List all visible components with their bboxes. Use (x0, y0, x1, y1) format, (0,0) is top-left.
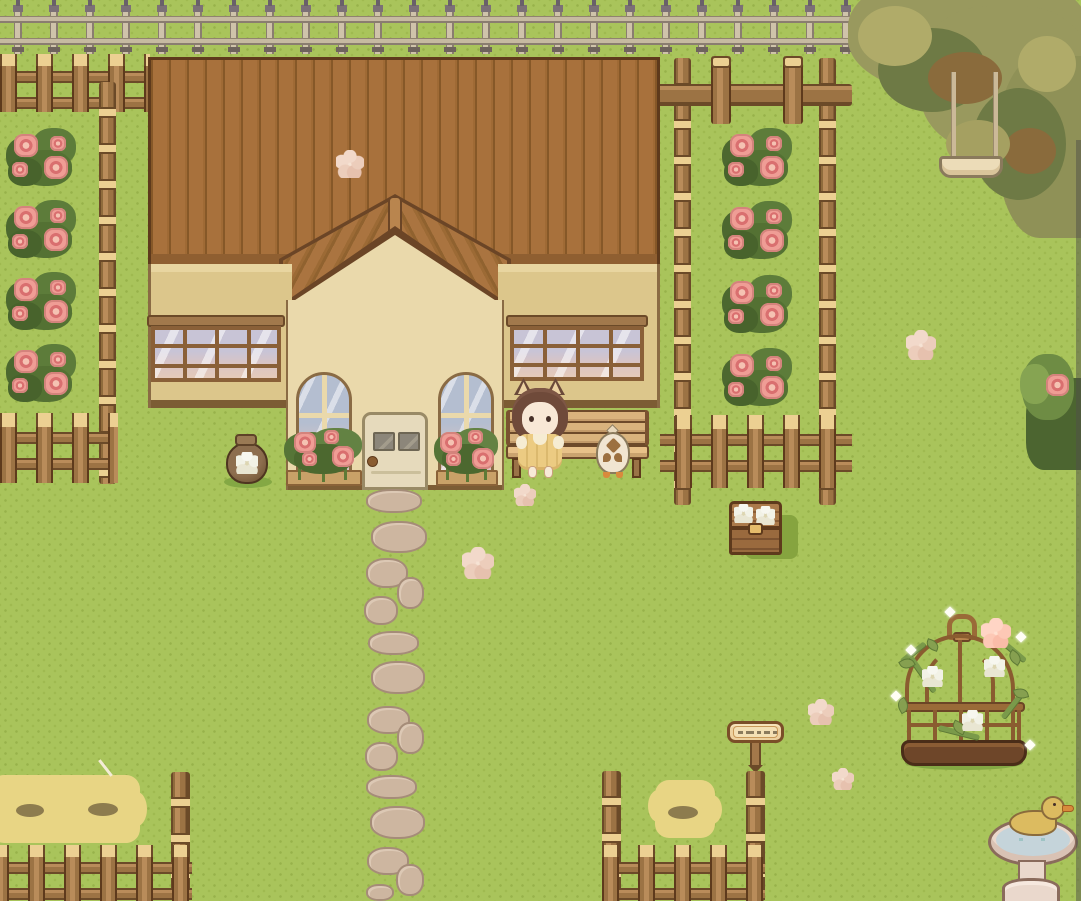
path-stone (396, 864, 424, 896)
cage-flower (984, 656, 1005, 677)
grass-blossom (336, 150, 364, 178)
window-mullion (183, 330, 187, 378)
grass-blossom (514, 484, 536, 506)
rose-flower (12, 378, 28, 393)
rose-flower (730, 207, 754, 230)
chicken-marking (614, 453, 622, 462)
rose-flower (324, 430, 339, 444)
window-mullion (215, 330, 219, 378)
cage-flower (962, 710, 983, 731)
rose-flower (760, 156, 784, 179)
pen-fence-left (0, 845, 192, 901)
girl-eye (546, 416, 551, 422)
path-stone (368, 631, 419, 655)
bath-base (1002, 878, 1060, 901)
pot-rim (235, 434, 257, 446)
door-groove (371, 471, 421, 474)
flower-pot[interactable] (224, 434, 272, 488)
rose-bush (722, 275, 792, 335)
rose-flower (766, 356, 782, 371)
rose-flower (730, 134, 754, 157)
rose-flower (302, 452, 317, 466)
grass-blossom (808, 699, 834, 725)
door-knob[interactable] (367, 456, 378, 467)
rose-flower (766, 136, 782, 151)
tree-foliage-light (1018, 36, 1076, 92)
screen-edge-shade (1076, 140, 1081, 901)
rose-flower (760, 376, 784, 399)
swing-seat[interactable] (939, 156, 1003, 178)
game-scene (0, 0, 1081, 901)
tree-foliage-light (858, 6, 932, 66)
rose-flower (468, 430, 483, 444)
door-pane (373, 432, 395, 451)
path-stone (366, 775, 417, 799)
pen-fence-right (602, 845, 765, 901)
rose-flower (44, 300, 68, 323)
rose-flower (50, 136, 66, 151)
rose-flower (44, 228, 68, 251)
girl-character[interactable] (512, 376, 568, 480)
swing-rope (951, 72, 956, 164)
rose-flower (12, 306, 28, 321)
rose-flower (440, 432, 462, 453)
window-right (510, 326, 644, 381)
hay-spot (16, 804, 44, 817)
swing-rope (993, 72, 998, 164)
rose-flower (760, 229, 784, 252)
rose-bush (6, 344, 76, 404)
rose-flower (728, 235, 744, 250)
wood-fence-top-left (0, 54, 150, 112)
window-mullion (543, 330, 547, 377)
rose-bush (6, 128, 76, 188)
rose-flower (50, 208, 66, 223)
cage-flower (922, 666, 943, 687)
rose-bush (6, 272, 76, 332)
chicken-foot (616, 472, 623, 478)
window-mullion (299, 413, 349, 418)
wood-rail (656, 84, 852, 106)
sign-mark (764, 731, 770, 734)
chicken-marking (603, 453, 611, 462)
rose-flower (332, 446, 354, 467)
path-stone (364, 596, 398, 625)
window-mullion (514, 363, 640, 367)
chicken-foot (603, 472, 610, 478)
rose-flower (14, 350, 38, 373)
window-mullion (155, 344, 277, 348)
rose-flower (12, 234, 28, 249)
path-stone (371, 521, 427, 553)
rose-flower (728, 162, 744, 177)
sign-panel (733, 726, 778, 738)
cage-base (901, 740, 1027, 766)
rose-bush (722, 201, 792, 261)
rose-flower (14, 134, 38, 157)
chicken[interactable] (594, 424, 632, 478)
rose-flower (766, 283, 782, 298)
sign-mark (773, 731, 777, 734)
wood-fence-left-garden (0, 413, 118, 483)
path-stone (371, 661, 425, 694)
rose-flower (766, 209, 782, 224)
path-stone (366, 489, 422, 513)
rose-flower (730, 281, 754, 304)
rose-flower (50, 352, 66, 367)
window-mullion (609, 330, 613, 377)
birdcage[interactable] (896, 606, 1032, 772)
grass-blossom (981, 618, 1011, 648)
rose-flower (728, 382, 744, 397)
rose-flower (50, 280, 66, 295)
rose-flower (14, 206, 38, 229)
pot-flower-motif (236, 452, 258, 474)
sign-post (750, 741, 761, 767)
duck-beak (1062, 805, 1074, 812)
path-stone (365, 742, 398, 771)
bench-leg (632, 458, 641, 478)
window-left (151, 326, 281, 382)
grass-blossom (906, 330, 936, 360)
hay-spot (88, 803, 118, 816)
girl-foot (528, 466, 537, 478)
girl-eye (529, 416, 534, 422)
rose-bush (722, 348, 792, 408)
sign-mark (757, 731, 762, 734)
rose-flower (12, 162, 28, 177)
storage-chest[interactable] (729, 501, 782, 555)
window-mullion (247, 330, 251, 378)
rose-flower (472, 448, 494, 469)
girl-sleeve (553, 436, 564, 449)
planter-right (434, 428, 500, 488)
front-door[interactable] (362, 412, 428, 490)
planter-left (284, 428, 364, 488)
corner-bush (1020, 350, 1081, 472)
window-mullion (441, 413, 491, 418)
rose-flower (728, 309, 744, 324)
path-stone (366, 884, 394, 901)
chest-flower (734, 504, 753, 523)
fence-post (711, 56, 731, 124)
hay-spot (668, 806, 698, 819)
path-stone (397, 722, 424, 754)
path-stone (370, 806, 425, 839)
rose-flower (44, 156, 68, 179)
girl-face (522, 402, 558, 436)
rose-bush (6, 200, 76, 260)
duck-eye (1053, 803, 1056, 806)
rose-flower (14, 278, 38, 301)
girl-foot (544, 466, 553, 478)
sign-mark (746, 731, 754, 734)
girl-sleeve (516, 436, 527, 449)
grass-blossom (462, 547, 494, 579)
rose-flower (760, 303, 784, 326)
rose-flower (294, 432, 316, 453)
cage-rib (958, 640, 962, 708)
wood-fence-right-garden (660, 415, 852, 488)
door-pane (398, 432, 420, 451)
window-mullion (514, 344, 640, 348)
window-mullion (576, 330, 580, 377)
sign-mark (738, 731, 743, 734)
rose-bush (722, 128, 792, 188)
tree-branch (1004, 128, 1056, 174)
fence-post (783, 56, 803, 124)
chest-clasp (748, 523, 763, 535)
rose-flower (446, 452, 461, 466)
window-mullion (155, 364, 277, 368)
path-stone (397, 577, 424, 609)
rose-flower (44, 372, 68, 395)
bird-bath[interactable] (985, 796, 1081, 901)
duck[interactable] (1009, 796, 1079, 838)
tree-branch (928, 52, 1002, 104)
signpost[interactable] (727, 721, 784, 772)
grass-blossom (832, 768, 854, 790)
rose-flower (730, 354, 754, 377)
rose-flower (1046, 374, 1069, 396)
